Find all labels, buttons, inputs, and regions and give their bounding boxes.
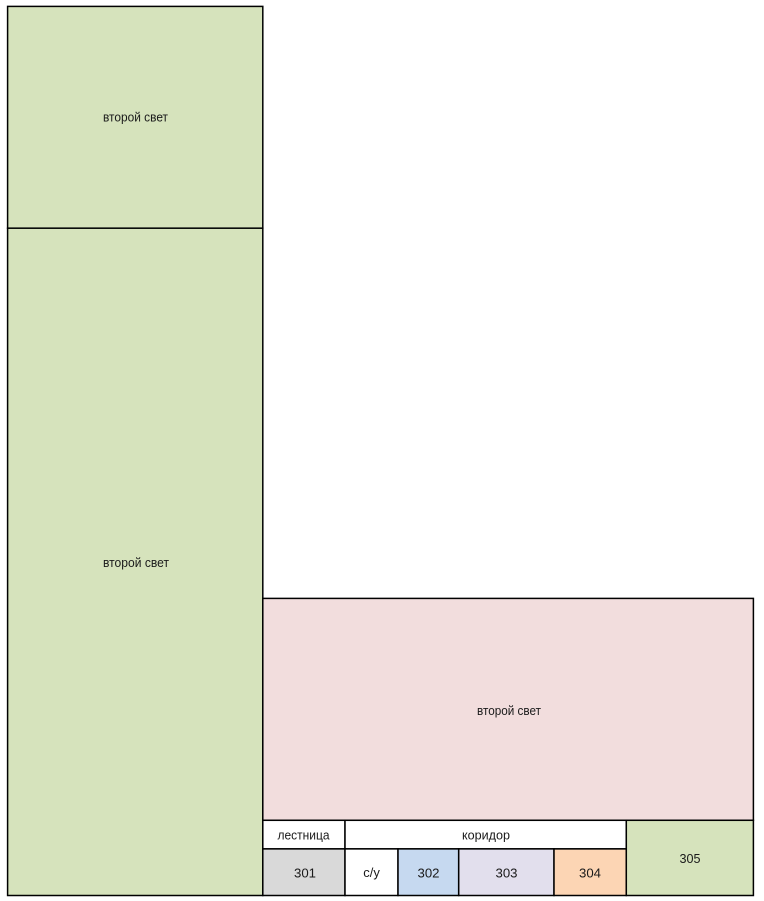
svg-text:коридор: коридор: [462, 828, 510, 843]
svg-text:второй свет: второй свет: [103, 110, 168, 125]
svg-text:с/у: с/у: [363, 865, 380, 880]
svg-text:301: 301: [294, 865, 316, 880]
svg-text:305: 305: [680, 851, 701, 866]
svg-text:303: 303: [496, 865, 518, 880]
svg-text:304: 304: [579, 865, 601, 880]
svg-text:302: 302: [418, 865, 440, 880]
svg-text:второй свет: второй свет: [103, 555, 169, 570]
svg-text:лестница: лестница: [278, 828, 331, 843]
svg-text:второй свет: второй свет: [477, 703, 541, 718]
